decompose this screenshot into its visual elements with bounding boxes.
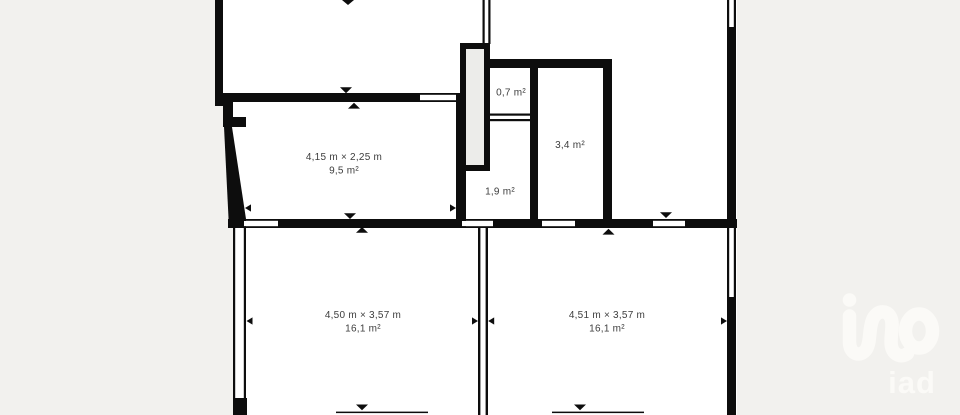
floor-plan-page: 4,15 m × 2,25 m 9,5 m² 0,7 m² 3,4 m² 1,9…: [0, 0, 960, 415]
wall-mid-s5: [685, 219, 737, 228]
thin-wall-above-duct-r: [488, 0, 490, 44]
wall-left-bottom: [233, 398, 247, 415]
room-area-label: 16,1 m²: [345, 324, 381, 335]
room-area-label: 1,9 m²: [485, 187, 515, 198]
room-area-label: 16,1 m²: [589, 324, 625, 335]
iad-logo-text: iad: [888, 365, 936, 400]
wall-mid-s3: [493, 219, 542, 228]
room-dimensions-label: 4,51 m × 3,57 m: [569, 310, 645, 321]
wall-left-stub: [223, 117, 246, 127]
door-outline-bottom-right: [552, 412, 644, 414]
room-area-label: 3,4 m²: [555, 140, 585, 151]
thin-wall-above-duct-l: [483, 0, 485, 44]
thin-wall-07-19-a: [490, 114, 530, 116]
wall-left-top: [215, 0, 223, 106]
thin-wall-07-19-b: [490, 119, 530, 121]
room-area-label: 0,7 m²: [496, 88, 526, 99]
wall-top-horizontal: [222, 93, 420, 102]
door-outline-bottom-left: [336, 412, 428, 414]
wall-mid-s2: [278, 219, 462, 228]
door-room34: [542, 219, 575, 228]
room-dimensions-label: 4,15 m × 2,25 m: [306, 152, 382, 163]
floor-plan: 4,15 m × 2,25 m 9,5 m² 0,7 m² 3,4 m² 1,9…: [0, 0, 960, 415]
door-top-right-room: [653, 219, 685, 228]
duct-cavity: [466, 49, 484, 165]
wall-right-bottom: [727, 297, 736, 415]
door-room95: [244, 219, 278, 228]
door-room19: [462, 219, 493, 228]
wall-right-mid: [727, 27, 736, 219]
wall-mid-s1: [228, 219, 244, 228]
iad-logo-icon: [843, 293, 933, 355]
wall-34-right: [603, 59, 612, 219]
wall-between-07-34: [530, 59, 538, 228]
wall-small-rooms-top: [484, 59, 612, 68]
wall-mid-s4: [575, 219, 653, 228]
room-dimensions-label: 4,50 m × 3,57 m: [325, 310, 401, 321]
wall-left-step: [223, 102, 233, 119]
room-area-label: 9,5 m²: [329, 166, 359, 177]
iad-watermark: iad: [843, 293, 936, 400]
door-top-wall: [420, 93, 456, 102]
